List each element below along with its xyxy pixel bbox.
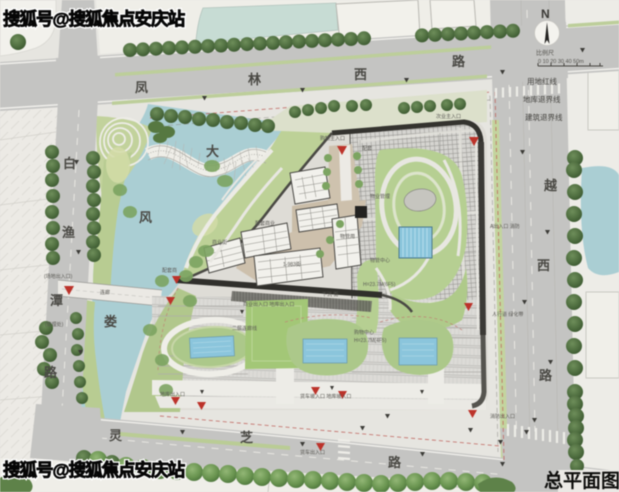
svg-text:建筑退界线: 建筑退界线 — [525, 112, 563, 122]
svg-text:消防出入口: 消防出入口 — [490, 413, 515, 420]
svg-text:商业出入口 地库出入口: 商业出入口 地库出入口 — [243, 301, 294, 308]
svg-text:白: 白 — [63, 156, 76, 171]
svg-text:用地红线: 用地红线 — [527, 76, 557, 86]
svg-text:物管中心: 物管中心 — [370, 257, 390, 264]
svg-text:搜狐号@搜狐焦点安庆站: 搜狐号@搜狐焦点安庆站 — [3, 9, 186, 29]
svg-text:H=23.7M(6F5): H=23.7M(6F5) — [363, 282, 396, 288]
svg-text:购物中心: 购物中心 — [354, 329, 374, 336]
svg-text:西: 西 — [354, 67, 367, 82]
svg-text:物业管理: 物业管理 — [370, 193, 390, 200]
svg-text:灵: 灵 — [109, 428, 123, 443]
svg-text:配套: 配套 — [362, 145, 372, 152]
svg-text:路: 路 — [539, 368, 553, 383]
svg-text:渔: 渔 — [62, 225, 75, 240]
svg-text:风: 风 — [139, 210, 152, 225]
svg-text:二层连廊线: 二层连廊线 — [232, 325, 257, 332]
svg-text:购物主入口: 购物主入口 — [320, 135, 345, 142]
svg-text:地库出入口: 地库出入口 — [160, 391, 185, 398]
svg-text:货车出入口: 货车出入口 — [300, 449, 325, 456]
svg-text:地库退界线: 地库退界线 — [523, 94, 561, 104]
svg-text:配套商: 配套商 — [162, 267, 177, 274]
svg-text:配套商业: 配套商业 — [255, 220, 275, 227]
svg-text:越: 越 — [543, 178, 558, 193]
svg-text:下沉 街: 下沉 街 — [322, 291, 338, 298]
svg-text:1-983街: 1-983街 — [283, 261, 301, 268]
svg-text:比例尺: 比例尺 — [536, 49, 554, 57]
svg-text:货车坡入口 地库坡入口: 货车坡入口 地库坡入口 — [300, 393, 351, 400]
svg-text:次业主入口: 次业主入口 — [436, 113, 461, 120]
svg-text:凤: 凤 — [135, 80, 148, 95]
svg-text:路: 路 — [388, 455, 402, 470]
svg-text:H=23.7M(4F5): H=23.7M(4F5) — [354, 338, 387, 344]
svg-text:大: 大 — [206, 144, 219, 159]
svg-text:林: 林 — [248, 72, 261, 87]
svg-text:路: 路 — [452, 54, 466, 69]
svg-text:(场地出入口): (场地出入口) — [44, 273, 73, 280]
svg-text:N: N — [541, 7, 550, 21]
svg-text:商业街: 商业街 — [212, 239, 227, 246]
svg-text:娄: 娄 — [104, 314, 117, 329]
svg-text:物管用: 物管用 — [340, 233, 355, 240]
svg-text:潭: 潭 — [50, 293, 63, 308]
svg-text:路: 路 — [44, 365, 58, 380]
svg-text:A出入口 消防: A出入口 消防 — [490, 223, 520, 230]
svg-text:搜狐号@搜狐焦点安庆站: 搜狐号@搜狐焦点安庆站 — [3, 460, 186, 480]
svg-text:(管理处): (管理处) — [45, 321, 64, 328]
svg-text:西: 西 — [537, 258, 550, 273]
svg-text:人行道 绿化带: 人行道 绿化带 — [492, 311, 523, 318]
svg-text:总平面图: 总平面图 — [544, 469, 619, 492]
svg-text:连廊: 连廊 — [100, 289, 110, 296]
svg-text:芝: 芝 — [240, 430, 253, 445]
